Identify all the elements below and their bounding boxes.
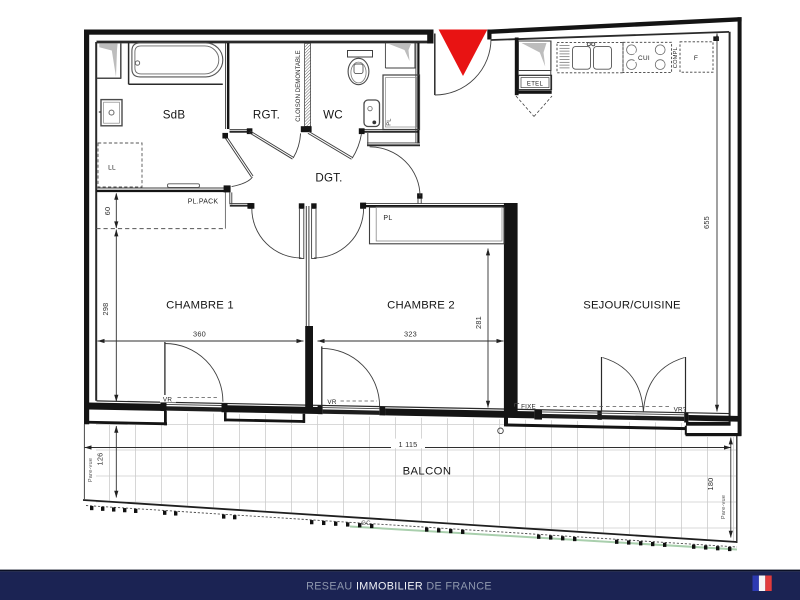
svg-text:655: 655 — [702, 216, 711, 229]
svg-text:ETEL: ETEL — [527, 82, 544, 88]
svg-text:CUI: CUI — [638, 55, 650, 62]
svg-text:FIXE: FIXE — [521, 404, 536, 411]
svg-text:360: 360 — [193, 330, 206, 339]
svg-text:F: F — [694, 55, 698, 62]
svg-text:323: 323 — [404, 330, 417, 339]
svg-text:VR: VR — [163, 396, 172, 403]
svg-text:VR?: VR? — [674, 407, 687, 414]
svg-text:281: 281 — [474, 316, 483, 329]
svg-text:BALCON: BALCON — [403, 466, 452, 478]
svg-text:CHAMBRE 2: CHAMBRE 2 — [387, 300, 455, 312]
svg-text:PL: PL — [383, 215, 392, 222]
svg-text:60: 60 — [103, 207, 112, 216]
svg-text:CHAMBRE 1: CHAMBRE 1 — [166, 300, 234, 312]
svg-text:SEJOUR/CUISINE: SEJOUR/CUISINE — [583, 300, 681, 312]
svg-text:PL: PL — [387, 118, 393, 126]
svg-text:180: 180 — [706, 478, 715, 491]
svg-text:RESEAU IMMOBILIER DE FRANCE: RESEAU IMMOBILIER DE FRANCE — [306, 581, 492, 593]
svg-text:DGT.: DGT. — [315, 172, 342, 185]
svg-text:SdB: SdB — [163, 108, 186, 121]
svg-text:COMPL: COMPL — [673, 47, 679, 68]
svg-text:PL.PACK: PL.PACK — [188, 198, 219, 205]
svg-text:LL: LL — [108, 165, 116, 172]
svg-text:298: 298 — [101, 303, 110, 316]
svg-text:1 115: 1 115 — [399, 440, 418, 449]
svg-text:126: 126 — [96, 453, 105, 466]
svg-text:GC: GC — [361, 520, 371, 527]
svg-text:WC: WC — [323, 108, 343, 121]
svg-text:CLOISON DEMONTABLE: CLOISON DEMONTABLE — [296, 50, 302, 121]
svg-text:Pare-vue: Pare-vue — [721, 495, 727, 519]
svg-text:RGT.: RGT. — [253, 108, 280, 121]
svg-text:Pare-vue: Pare-vue — [88, 458, 94, 482]
svg-text:VR: VR — [327, 399, 336, 406]
